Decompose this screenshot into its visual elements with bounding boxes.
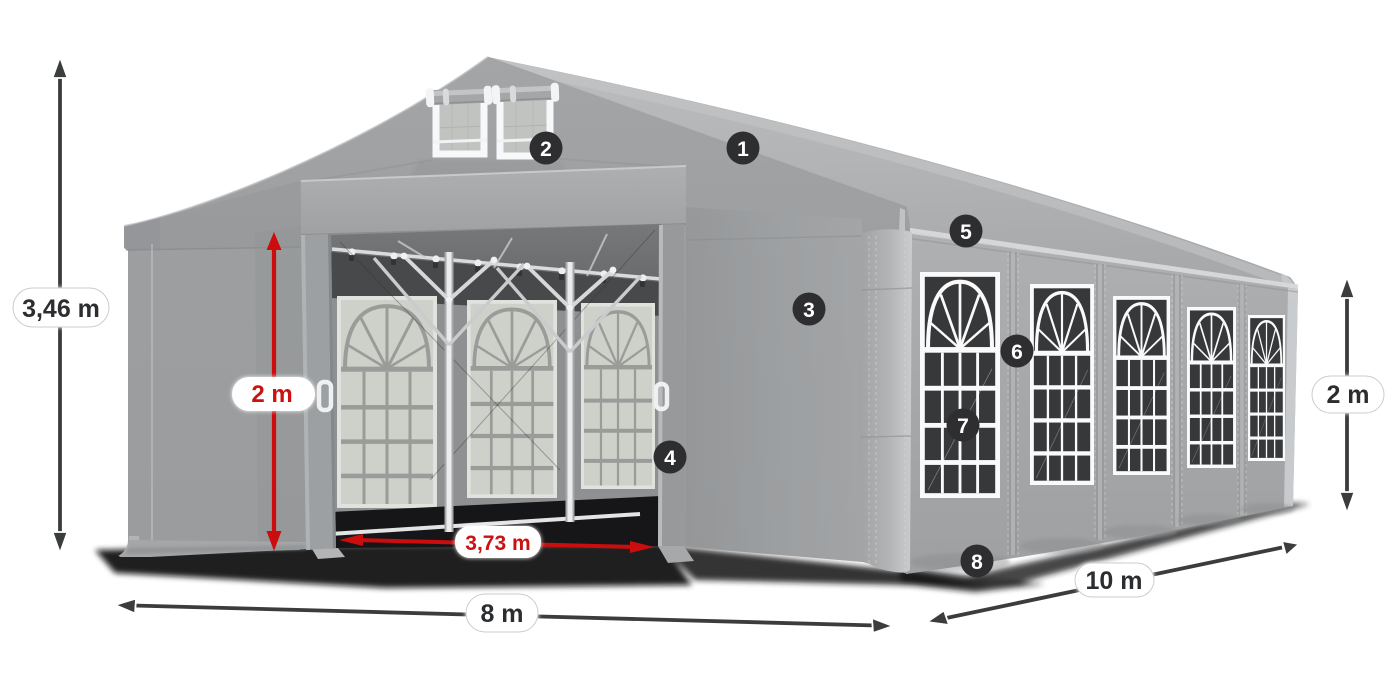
svg-text:3,46 m: 3,46 m (22, 295, 100, 323)
svg-text:4: 4 (664, 447, 676, 470)
svg-text:8 m: 8 m (480, 600, 523, 628)
svg-text:8: 8 (971, 551, 983, 574)
svg-text:3,73 m: 3,73 m (465, 532, 530, 555)
svg-text:5: 5 (960, 221, 972, 244)
svg-text:6: 6 (1011, 341, 1023, 364)
svg-text:10 m: 10 m (1086, 567, 1143, 595)
svg-text:7: 7 (957, 415, 969, 438)
svg-text:2: 2 (540, 138, 552, 161)
svg-text:2 m: 2 m (1326, 381, 1369, 409)
svg-text:1: 1 (737, 138, 749, 161)
svg-text:2 m: 2 m (251, 381, 292, 408)
svg-text:3: 3 (803, 299, 815, 322)
